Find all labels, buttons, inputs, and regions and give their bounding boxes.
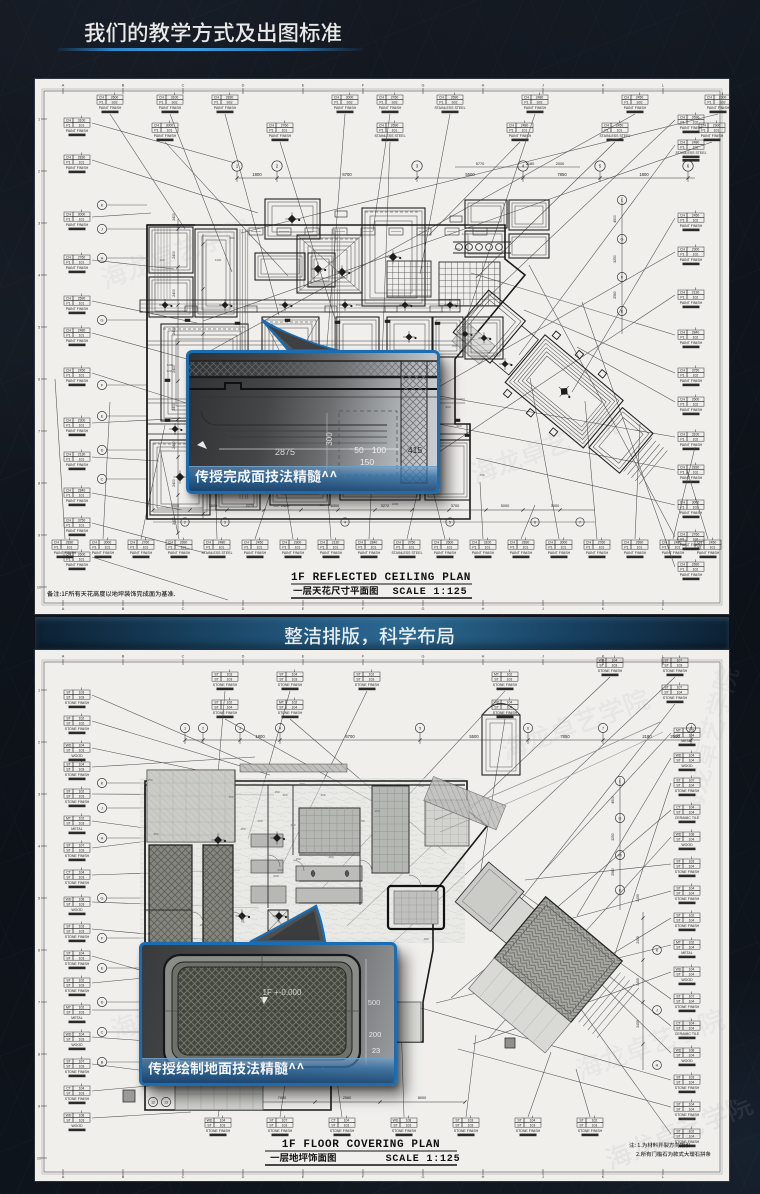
svg-text:4500: 4500 [613, 215, 617, 223]
svg-text:CH: CH [66, 519, 71, 523]
svg-text:102: 102 [693, 567, 699, 571]
svg-text:ST: ST [676, 1076, 680, 1080]
svg-text:103: 103 [79, 1010, 85, 1014]
svg-text:P1: P1 [154, 128, 158, 132]
svg-text:P1: P1 [680, 567, 684, 571]
svg-text:2840: 2840 [370, 541, 378, 545]
svg-text:2690: 2690 [451, 96, 459, 100]
svg-text:2180: 2180 [526, 162, 534, 166]
svg-text:E: E [302, 84, 305, 88]
svg-text:7850: 7850 [557, 172, 567, 177]
svg-text:103: 103 [468, 1123, 474, 1127]
svg-text:P1: P1 [99, 100, 103, 104]
svg-text:107: 107 [677, 659, 683, 663]
svg-text:5500: 5500 [465, 172, 475, 177]
svg-text:S02: S02 [226, 100, 232, 104]
svg-text:ST: ST [676, 972, 680, 976]
svg-text:STONE FINISH: STONE FINISH [65, 727, 90, 731]
svg-text:WD: WD [676, 754, 682, 758]
svg-text:CH: CH [707, 96, 712, 100]
svg-text:1800: 1800 [639, 172, 649, 177]
svg-text:4: 4 [38, 844, 40, 848]
svg-text:P1: P1 [524, 100, 528, 104]
svg-text:900: 900 [477, 303, 482, 307]
svg-text:STONE FINISH: STONE FINISH [65, 989, 90, 993]
svg-text:107: 107 [677, 686, 683, 690]
svg-text:103: 103 [292, 677, 298, 681]
svg-text:WOOD: WOOD [71, 754, 83, 758]
svg-text:450: 450 [153, 832, 158, 836]
svg-text:101: 101 [637, 545, 643, 549]
svg-text:L: L [662, 84, 664, 88]
svg-text:103: 103 [592, 1123, 598, 1127]
svg-text:P1: P1 [130, 545, 134, 549]
svg-text:H: H [482, 607, 485, 611]
svg-text:2480: 2480 [78, 329, 86, 333]
svg-text:G: G [422, 84, 425, 88]
svg-text:CH: CH [434, 541, 439, 545]
svg-text:101: 101 [561, 545, 567, 549]
svg-text:P1: P1 [707, 100, 711, 104]
svg-text:2300: 2300 [294, 541, 302, 545]
svg-text:101: 101 [143, 545, 149, 549]
svg-text:2760: 2760 [692, 533, 700, 537]
svg-text:450: 450 [204, 872, 209, 876]
svg-text:102: 102 [693, 505, 699, 509]
svg-text:104: 104 [612, 659, 618, 663]
svg-text:P1: P1 [66, 493, 70, 497]
svg-text:1: 1 [38, 117, 40, 121]
svg-text:P1: P1 [434, 545, 438, 549]
svg-text:PAINT FINISH: PAINT FINISH [159, 106, 182, 110]
svg-text:CH: CH [524, 96, 529, 100]
svg-text:PAINT FINISH: PAINT FINISH [680, 408, 703, 412]
svg-text:103: 103 [530, 1123, 536, 1127]
svg-text:P1: P1 [379, 128, 383, 132]
svg-text:102: 102 [507, 673, 513, 677]
svg-text:2480: 2480 [692, 141, 700, 145]
svg-text:L: L [662, 607, 664, 611]
svg-text:103: 103 [79, 794, 85, 798]
svg-text:STONE FINISH: STONE FINISH [516, 1129, 541, 1133]
svg-text:1200: 1200 [392, 502, 399, 506]
svg-text:300: 300 [325, 432, 334, 446]
svg-text:2450: 2450 [636, 96, 644, 100]
svg-text:CT: CT [66, 871, 71, 875]
svg-text:CH: CH [282, 541, 287, 545]
svg-text:10: 10 [37, 585, 41, 589]
svg-text:3750: 3750 [692, 369, 700, 373]
svg-text:2300: 2300 [78, 419, 86, 423]
svg-text:CH: CH [66, 156, 71, 160]
svg-text:4: 4 [38, 273, 40, 277]
svg-text:C: C [182, 655, 185, 659]
svg-text:P1: P1 [244, 545, 248, 549]
svg-text:3000: 3000 [560, 541, 568, 545]
svg-text:STONE FINISH: STONE FINISH [493, 683, 518, 687]
svg-text:ST: ST [517, 1119, 521, 1123]
svg-text:4: 4 [279, 727, 281, 731]
svg-text:PAINT FINISH: PAINT FINISH [154, 134, 177, 138]
svg-text:CH: CH [680, 248, 685, 252]
svg-text:3000: 3000 [78, 213, 86, 217]
svg-text:CH: CH [624, 96, 629, 100]
svg-text:2600: 2600 [78, 553, 86, 557]
svg-text:101: 101 [599, 545, 605, 549]
svg-text:2760: 2760 [78, 256, 86, 260]
svg-text:ST: ST [579, 1119, 583, 1123]
svg-text:102: 102 [693, 218, 699, 222]
svg-text:D: D [101, 1001, 104, 1005]
svg-text:PAINT FINISH: PAINT FINISH [662, 551, 685, 555]
svg-text:CH: CH [66, 256, 71, 260]
svg-text:PAINT FINISH: PAINT FINISH [66, 463, 89, 467]
svg-text:ST: ST [66, 925, 70, 929]
svg-text:2830: 2830 [226, 96, 234, 100]
svg-text:ST: ST [676, 945, 680, 949]
svg-text:2840: 2840 [78, 489, 86, 493]
svg-text:CH: CH [509, 124, 514, 128]
svg-text:F: F [101, 937, 104, 941]
svg-text:CH: CH [396, 541, 401, 545]
svg-text:150: 150 [374, 809, 379, 813]
svg-text:ST: ST [214, 701, 218, 705]
svg-text:CH: CH [99, 96, 104, 100]
svg-text:ST: ST [269, 1123, 273, 1127]
svg-text:900: 900 [456, 424, 461, 428]
svg-text:101: 101 [79, 373, 85, 377]
svg-text:PAINT FINISH: PAINT FINISH [680, 258, 703, 262]
svg-text:150: 150 [423, 937, 428, 941]
svg-text:102: 102 [693, 120, 699, 124]
svg-text:23: 23 [372, 1046, 380, 1055]
svg-text:4500: 4500 [611, 796, 615, 804]
svg-text:PAINT FINISH: PAINT FINISH [701, 134, 724, 138]
svg-text:PAINT FINISH: PAINT FINISH [358, 551, 381, 555]
svg-text:2275: 2275 [246, 504, 254, 508]
svg-text:D: D [242, 84, 245, 88]
svg-text:2: 2 [38, 740, 40, 744]
svg-text:102: 102 [227, 701, 233, 705]
svg-text:ST: ST [66, 763, 70, 767]
svg-text:STONE FINISH: STONE FINISH [675, 924, 700, 928]
svg-text:104: 104 [79, 744, 85, 748]
svg-text:J: J [542, 655, 544, 659]
svg-text:MT: MT [676, 941, 681, 945]
svg-text:900: 900 [445, 405, 450, 409]
svg-text:P1: P1 [680, 470, 684, 474]
svg-text:PAINT FINISH: PAINT FINISH [680, 573, 703, 577]
svg-text:103: 103 [79, 983, 85, 987]
svg-text:PAINT FINISH: PAINT FINISH [379, 106, 402, 110]
svg-text:STAINLESS STEEL: STAINLESS STEEL [201, 551, 232, 555]
svg-text:50: 50 [354, 445, 364, 455]
svg-text:PAINT FINISH: PAINT FINISH [244, 551, 267, 555]
svg-text:CT: CT [676, 806, 681, 810]
svg-text:3000: 3000 [551, 504, 559, 508]
svg-text:A: A [62, 607, 65, 611]
svg-text:ST: ST [664, 659, 668, 663]
svg-text:ST: ST [66, 979, 70, 983]
svg-text:102: 102 [693, 335, 699, 339]
svg-text:PAINT FINISH: PAINT FINISH [269, 134, 292, 138]
svg-text:C: C [182, 1175, 185, 1179]
svg-text:J: J [542, 1175, 544, 1179]
svg-text:101: 101 [79, 457, 85, 461]
svg-text:B: B [101, 1061, 104, 1065]
svg-text:B: B [122, 607, 125, 611]
svg-text:STAINLESS STEEL: STAINLESS STEEL [391, 551, 422, 555]
svg-text:101: 101 [617, 128, 623, 132]
svg-text:CH: CH [244, 541, 249, 545]
svg-text:H: H [482, 655, 485, 659]
svg-text:104: 104 [689, 918, 695, 922]
svg-text:2480: 2480 [536, 96, 544, 100]
svg-text:B: B [122, 655, 125, 659]
svg-text:150: 150 [359, 819, 364, 823]
svg-text:107: 107 [689, 995, 695, 999]
svg-text:103: 103 [79, 691, 85, 695]
svg-text:450: 450 [240, 827, 245, 831]
svg-text:415: 415 [408, 445, 422, 455]
svg-text:2600: 2600 [692, 398, 700, 402]
svg-text:450: 450 [418, 784, 423, 788]
svg-text:2400: 2400 [172, 251, 176, 259]
svg-text:CH: CH [680, 331, 685, 335]
svg-text:P1: P1 [509, 128, 513, 132]
svg-text:ST: ST [393, 1123, 397, 1127]
svg-text:CH: CH [624, 541, 629, 545]
svg-text:METAL: METAL [71, 1016, 82, 1020]
svg-text:C: C [101, 478, 104, 482]
svg-text:STONE FINISH: STONE FINISH [213, 711, 238, 715]
svg-text:P1: P1 [358, 545, 362, 549]
svg-text:104: 104 [689, 999, 695, 1003]
svg-text:STONE FINISH: STONE FINISH [65, 773, 90, 777]
svg-text:101: 101 [710, 545, 716, 549]
svg-text:3: 3 [38, 792, 40, 796]
svg-text:ST: ST [269, 1119, 273, 1123]
svg-text:CH: CH [680, 563, 685, 567]
svg-text:101: 101 [675, 545, 681, 549]
svg-text:PAINT FINISH: PAINT FINISH [707, 106, 729, 110]
svg-text:103: 103 [468, 1119, 474, 1123]
svg-text:2600: 2600 [111, 96, 119, 100]
svg-text:P1: P1 [66, 217, 70, 221]
svg-text:2760: 2760 [281, 124, 289, 128]
svg-text:P1: P1 [66, 301, 70, 305]
svg-text:450: 450 [355, 303, 360, 307]
svg-text:101: 101 [409, 545, 415, 549]
svg-text:STONE FINISH: STONE FINISH [65, 701, 90, 705]
svg-text:300: 300 [299, 782, 304, 786]
svg-text:S02: S02 [171, 100, 177, 104]
svg-text:F: F [362, 655, 365, 659]
svg-text:STONE FINISH: STONE FINISH [454, 1129, 479, 1133]
svg-text:CH: CH [130, 541, 135, 545]
svg-text:WOOD: WOOD [71, 1043, 83, 1047]
svg-text:2400: 2400 [636, 978, 640, 986]
svg-text:103: 103 [79, 925, 85, 929]
svg-text:6: 6 [38, 948, 40, 952]
svg-text:3600: 3600 [209, 504, 217, 508]
svg-text:CH: CH [548, 541, 553, 545]
svg-text:WOOD: WOOD [71, 1124, 83, 1128]
svg-text:101: 101 [105, 545, 111, 549]
svg-text:CH: CH [159, 96, 164, 100]
svg-text:WD: WD [676, 968, 682, 972]
svg-text:1F FLOOR COVERING PLAN: 1F FLOOR COVERING PLAN [282, 1139, 440, 1151]
svg-text:PAINT FINISH: PAINT FINISH [680, 341, 703, 345]
svg-text:ST: ST [455, 1123, 459, 1127]
svg-text:CH: CH [697, 541, 702, 545]
svg-text:5770: 5770 [476, 162, 484, 166]
svg-text:104: 104 [530, 1119, 536, 1123]
svg-text:STONE FINISH: STONE FINISH [65, 935, 90, 939]
svg-text:2400: 2400 [172, 213, 176, 221]
svg-text:CH: CH [680, 214, 685, 218]
svg-text:F: F [621, 276, 624, 280]
svg-text:101: 101 [219, 545, 225, 549]
svg-text:102: 102 [292, 701, 298, 705]
svg-text:103: 103 [227, 673, 233, 677]
svg-text:9: 9 [38, 1104, 40, 1108]
svg-text:1800: 1800 [252, 172, 262, 177]
svg-text:3750: 3750 [408, 541, 416, 545]
svg-text:ST: ST [676, 864, 680, 868]
svg-text:STONE FINISH: STONE FINISH [278, 683, 303, 687]
svg-text:104: 104 [79, 1033, 85, 1037]
svg-text:102: 102 [79, 979, 85, 983]
svg-text:ST: ST [356, 677, 360, 681]
svg-text:F: F [362, 1175, 365, 1179]
svg-text:P1: P1 [320, 545, 324, 549]
svg-text:ST: ST [66, 952, 70, 956]
svg-text:L: L [619, 780, 621, 784]
svg-text:2400: 2400 [172, 403, 176, 411]
svg-text:CH: CH [269, 124, 274, 128]
svg-text:P1: P1 [680, 437, 684, 441]
svg-text:ST: ST [664, 690, 668, 694]
svg-text:S02: S02 [536, 100, 542, 104]
svg-text:103: 103 [612, 663, 618, 667]
svg-text:1800: 1800 [255, 734, 265, 739]
svg-text:2400: 2400 [172, 289, 176, 297]
svg-text:3100: 3100 [78, 119, 86, 123]
svg-text:101: 101 [79, 217, 85, 221]
svg-text:ST: ST [676, 1053, 680, 1057]
svg-text:8: 8 [38, 481, 40, 485]
svg-text:PAINT FINISH: PAINT FINISH [510, 551, 533, 555]
svg-text:E: E [619, 889, 622, 893]
svg-text:2400: 2400 [172, 441, 176, 449]
svg-text:104: 104 [689, 972, 695, 976]
svg-text:ST: ST [66, 844, 70, 848]
svg-text:P1: P1 [662, 545, 666, 549]
svg-text:PAINT FINISH: PAINT FINISH [66, 499, 89, 503]
svg-text:J: J [101, 807, 103, 811]
svg-text:104: 104 [292, 673, 298, 677]
svg-text:101: 101 [79, 123, 85, 127]
svg-text:PAINT FINISH: PAINT FINISH [54, 551, 77, 555]
svg-text:6: 6 [687, 164, 690, 169]
svg-text:PAINT FINISH: PAINT FINISH [66, 529, 89, 533]
svg-text:G: G [101, 319, 104, 323]
svg-text:100: 100 [339, 275, 344, 279]
svg-text:CH: CH [586, 541, 591, 545]
svg-text:2760: 2760 [142, 541, 150, 545]
svg-text:J: J [101, 228, 103, 232]
svg-text:S02: S02 [391, 100, 397, 104]
svg-text:ST: ST [494, 677, 498, 681]
svg-text:CH: CH [604, 124, 609, 128]
svg-text:104: 104 [344, 1119, 350, 1123]
svg-text:107: 107 [79, 844, 85, 848]
svg-text:150: 150 [147, 778, 152, 782]
svg-text:S02: S02 [719, 100, 725, 104]
svg-text:103: 103 [79, 1037, 85, 1041]
svg-text:101: 101 [392, 128, 398, 132]
svg-text:1425: 1425 [281, 504, 289, 508]
svg-text:104: 104 [689, 968, 695, 972]
svg-text:8300: 8300 [331, 504, 339, 508]
svg-text:P1: P1 [66, 523, 70, 527]
svg-text:ST: ST [66, 767, 70, 771]
svg-text:STONE FINISH: STONE FINISH [268, 1129, 293, 1133]
svg-text:6700: 6700 [342, 172, 352, 177]
svg-text:103: 103 [677, 663, 683, 667]
svg-text:H: H [656, 1064, 659, 1068]
svg-text:2130: 2130 [692, 291, 700, 295]
svg-text:PAINT FINISH: PAINT FINISH [680, 476, 703, 480]
svg-text:1200: 1200 [215, 258, 222, 262]
svg-text:103: 103 [282, 1123, 288, 1127]
svg-text:CT: CT [331, 1119, 336, 1123]
svg-text:G: G [621, 238, 624, 242]
svg-text:750: 750 [451, 344, 456, 348]
svg-text:ST: ST [66, 717, 70, 721]
svg-text:CH: CH [66, 119, 71, 123]
svg-text:103: 103 [79, 929, 85, 933]
svg-text:PAINT FINISH: PAINT FINISH [130, 551, 153, 555]
svg-text:100: 100 [372, 445, 386, 455]
svg-text:ST: ST [66, 1037, 70, 1041]
svg-text:103: 103 [344, 1123, 350, 1127]
svg-text:ST: ST [66, 929, 70, 933]
svg-text:104: 104 [689, 1053, 695, 1057]
svg-text:5: 5 [38, 896, 40, 900]
svg-text:J: J [542, 84, 544, 88]
svg-text:CH: CH [66, 419, 71, 423]
svg-text:ST: ST [676, 837, 680, 841]
svg-text:K: K [101, 204, 104, 208]
svg-text:101: 101 [257, 545, 263, 549]
svg-text:3000: 3000 [346, 96, 354, 100]
svg-text:101: 101 [282, 128, 288, 132]
svg-text:G: G [422, 1175, 425, 1179]
svg-text:3: 3 [38, 221, 40, 225]
svg-text:CH: CH [680, 141, 685, 145]
svg-text:800: 800 [148, 929, 153, 933]
svg-text:2000: 2000 [556, 162, 564, 166]
svg-text:103: 103 [79, 956, 85, 960]
svg-text:PAINT FINISH: PAINT FINISH [66, 379, 89, 383]
svg-text:2840: 2840 [692, 331, 700, 335]
svg-text:P1: P1 [66, 373, 70, 377]
svg-text:800: 800 [277, 868, 282, 872]
svg-text:103: 103 [220, 1123, 226, 1127]
svg-text:ST: ST [66, 721, 70, 725]
